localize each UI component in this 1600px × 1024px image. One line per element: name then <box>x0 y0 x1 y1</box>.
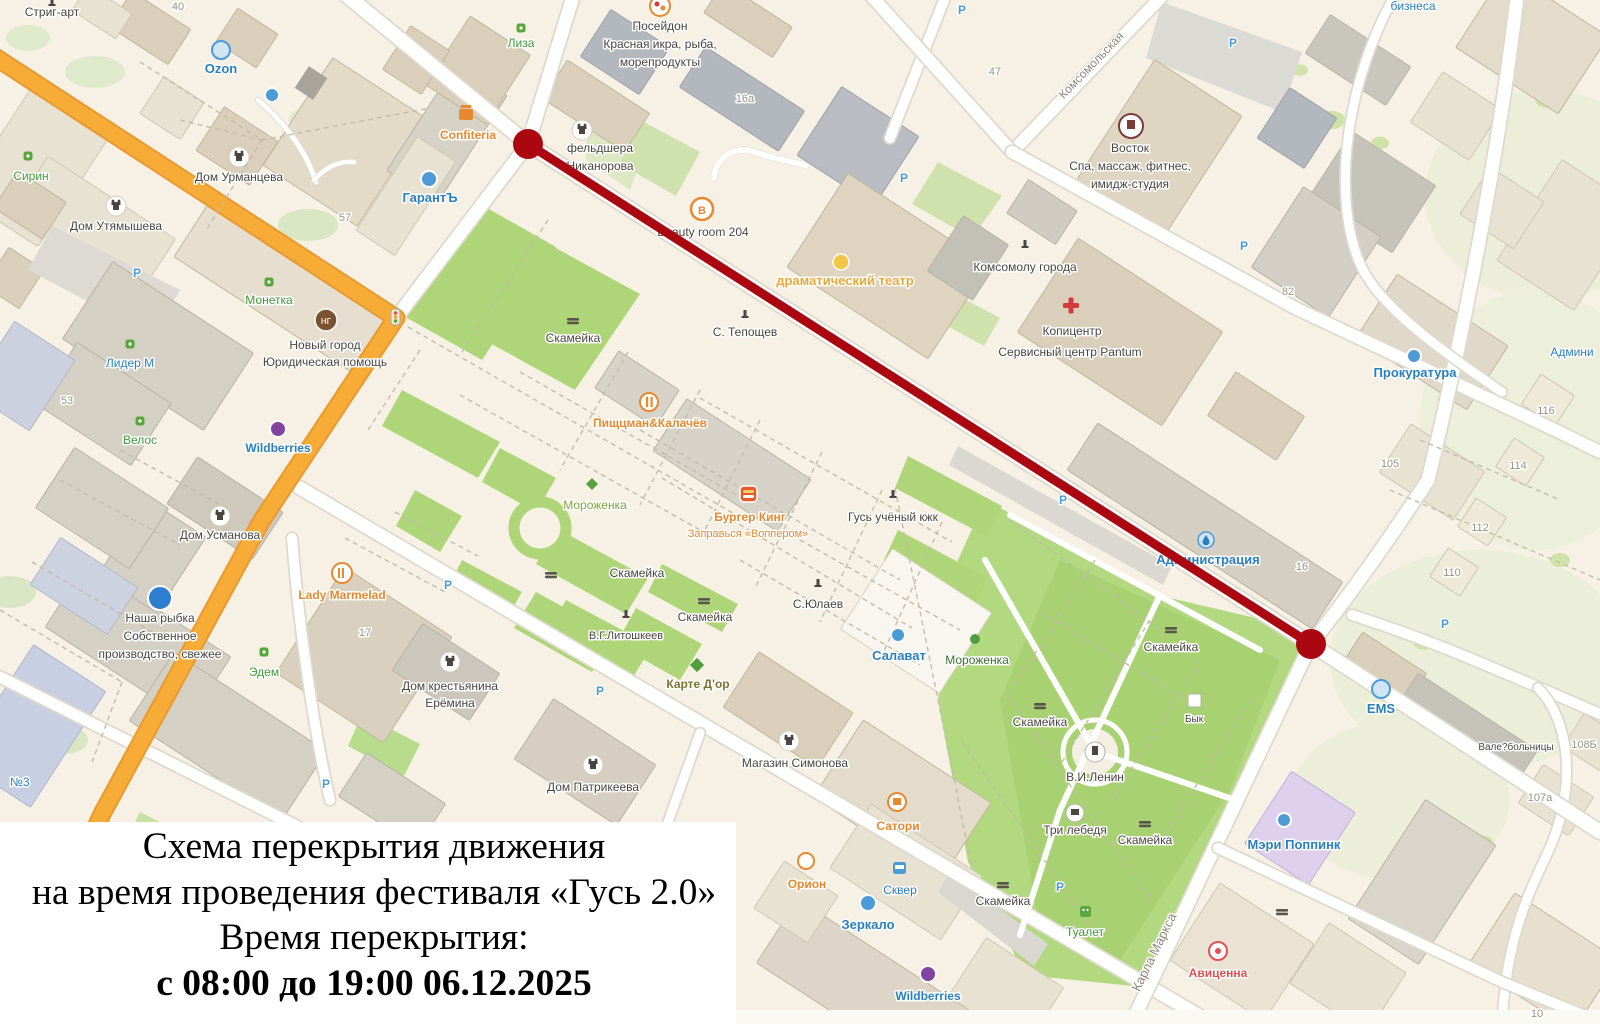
svg-text:Дом Утямышева: Дом Утямышева <box>70 219 163 233</box>
svg-text:Р: Р <box>1059 493 1067 507</box>
svg-text:105: 105 <box>1381 458 1399 470</box>
svg-text:Новый город: Новый город <box>289 338 360 352</box>
svg-text:драматический театр: драматический театр <box>776 273 914 288</box>
svg-text:Р: Р <box>1229 36 1237 50</box>
svg-text:Дом крестьянина: Дом крестьянина <box>402 679 498 693</box>
svg-text:112: 112 <box>1471 522 1489 534</box>
svg-text:47: 47 <box>989 66 1001 78</box>
svg-text:B: B <box>698 205 706 217</box>
svg-text:Туалет: Туалет <box>1066 925 1104 939</box>
svg-text:Сирин: Сирин <box>13 169 48 183</box>
svg-text:Р: Р <box>1056 880 1064 894</box>
svg-text:Сатори: Сатори <box>876 819 919 833</box>
svg-text:Юридическая помощь: Юридическая помощь <box>263 355 387 369</box>
svg-text:С.Юлаев: С.Юлаев <box>793 597 843 611</box>
svg-text:110: 110 <box>1443 567 1461 579</box>
svg-text:Лидер М: Лидер М <box>106 356 154 370</box>
svg-text:Ozon: Ozon <box>205 61 238 76</box>
svg-text:114: 114 <box>1509 460 1527 472</box>
svg-text:Салават: Салават <box>872 648 926 663</box>
svg-text:Комсомолу города: Комсомолу города <box>973 260 1077 274</box>
svg-text:116: 116 <box>1537 405 1555 417</box>
svg-text:Р: Р <box>900 171 908 185</box>
svg-text:108Б: 108Б <box>1571 739 1597 751</box>
svg-text:Бык: Бык <box>1185 714 1204 725</box>
svg-text:Дом Усманова: Дом Усманова <box>180 528 261 542</box>
svg-text:Мэри Поппинк: Мэри Поппинк <box>1248 837 1341 852</box>
svg-text:Бургер Кинг: Бургер Кинг <box>714 510 786 524</box>
svg-text:Wildberries: Wildberries <box>895 989 961 1003</box>
svg-text:53: 53 <box>61 395 73 407</box>
svg-text:В.И.Ленин: В.И.Ленин <box>1066 770 1124 784</box>
svg-text:Прокуратура: Прокуратура <box>1374 365 1458 380</box>
svg-text:Карте Д'ор: Карте Д'ор <box>666 677 729 691</box>
svg-text:Сервисный центр Pantum: Сервисный центр Pantum <box>998 345 1141 359</box>
svg-text:Мороженка: Мороженка <box>563 498 627 512</box>
svg-text:16а: 16а <box>736 93 755 105</box>
svg-text:Посейдон: Посейдон <box>633 19 688 33</box>
svg-text:ГарантЪ: ГарантЪ <box>402 190 457 205</box>
svg-text:Гусь учёный кжк: Гусь учёный кжк <box>848 510 939 524</box>
svg-text:Три лебедя: Три лебедя <box>1043 823 1107 837</box>
svg-text:С. Тепощев: С. Тепощев <box>713 325 778 339</box>
svg-text:фельдшера: фельдшера <box>567 141 633 155</box>
svg-text:Дом Патрикеева: Дом Патрикеева <box>547 780 639 794</box>
svg-text:Lady Marmelad: Lady Marmelad <box>298 588 385 602</box>
svg-text:Восток: Восток <box>1111 141 1150 155</box>
svg-text:107а: 107а <box>1528 792 1553 804</box>
svg-text:Копицентр: Копицентр <box>1042 324 1101 338</box>
svg-text:40: 40 <box>172 1 184 13</box>
svg-text:Админи: Админи <box>1550 345 1593 359</box>
svg-text:имидж-студия: имидж-студия <box>1091 177 1169 191</box>
svg-text:Р: Р <box>1441 617 1449 631</box>
svg-text:Скамейка: Скамейка <box>976 894 1031 908</box>
svg-text:Скамейка: Скамейка <box>1118 833 1173 847</box>
svg-text:№3: №3 <box>10 775 30 789</box>
svg-text:10: 10 <box>1531 1008 1543 1020</box>
svg-text:В.Г.Литошкеев: В.Г.Литошкеев <box>589 630 663 642</box>
svg-text:Монетка: Монетка <box>245 293 293 307</box>
svg-text:морепродукты: морепродукты <box>620 55 700 69</box>
svg-text:Р: Р <box>596 684 604 698</box>
svg-text:Собственное: Собственное <box>123 629 196 643</box>
svg-text:82: 82 <box>1282 286 1294 298</box>
svg-text:17: 17 <box>359 627 371 639</box>
svg-text:Зеркало: Зеркало <box>841 917 894 932</box>
svg-text:Confiteria: Confiteria <box>440 128 496 142</box>
svg-text:Мороженка: Мороженка <box>945 653 1009 667</box>
svg-text:Ерёмина: Ерёмина <box>425 696 475 710</box>
svg-text:Wildberries: Wildberries <box>245 441 311 455</box>
svg-text:Скамейка: Скамейка <box>1013 715 1068 729</box>
svg-text:Скамейка: Скамейка <box>610 566 665 580</box>
svg-text:Р: Р <box>958 3 966 17</box>
svg-text:Пищцман&Калачёв: Пищцман&Калачёв <box>593 416 707 430</box>
svg-text:Р: Р <box>444 578 452 592</box>
svg-text:Магазин Симонова: Магазин Симонова <box>742 756 848 770</box>
svg-text:Сквер: Сквер <box>883 883 917 897</box>
svg-text:НГ: НГ <box>321 317 332 326</box>
svg-text:Р: Р <box>133 266 141 280</box>
svg-text:Вале?больницы: Вале?больницы <box>1478 741 1553 753</box>
svg-text:Орион: Орион <box>788 877 827 891</box>
svg-text:производство, свежее: производство, свежее <box>99 647 222 661</box>
svg-text:EMS: EMS <box>1367 701 1396 716</box>
svg-text:Дом Урманцева: Дом Урманцева <box>195 170 283 184</box>
svg-text:Р: Р <box>1240 239 1248 253</box>
svg-text:Скамейка: Скамейка <box>546 331 601 345</box>
svg-text:Лиза: Лиза <box>508 36 535 50</box>
svg-text:16: 16 <box>1296 561 1308 573</box>
svg-text:57: 57 <box>339 212 351 224</box>
svg-text:Скамейка: Скамейка <box>1144 640 1199 654</box>
svg-text:Авиценна: Авиценна <box>1189 966 1248 980</box>
svg-text:Эдем: Эдем <box>249 665 279 679</box>
svg-text:Велос: Велос <box>123 433 157 447</box>
svg-text:бизнеса: бизнеса <box>1390 0 1435 13</box>
svg-text:Р: Р <box>322 777 330 791</box>
svg-text:Заправься «Воппером»: Заправься «Воппером» <box>688 528 809 540</box>
svg-text:Красная икра, рыба,: Красная икра, рыба, <box>603 37 716 51</box>
svg-text:Наша рыбка: Наша рыбка <box>125 611 195 625</box>
svg-text:Спа, массаж, фитнес,: Спа, массаж, фитнес, <box>1069 159 1191 173</box>
svg-text:Скамейка: Скамейка <box>678 610 733 624</box>
svg-text:Стриг-арт: Стриг-арт <box>25 5 80 19</box>
